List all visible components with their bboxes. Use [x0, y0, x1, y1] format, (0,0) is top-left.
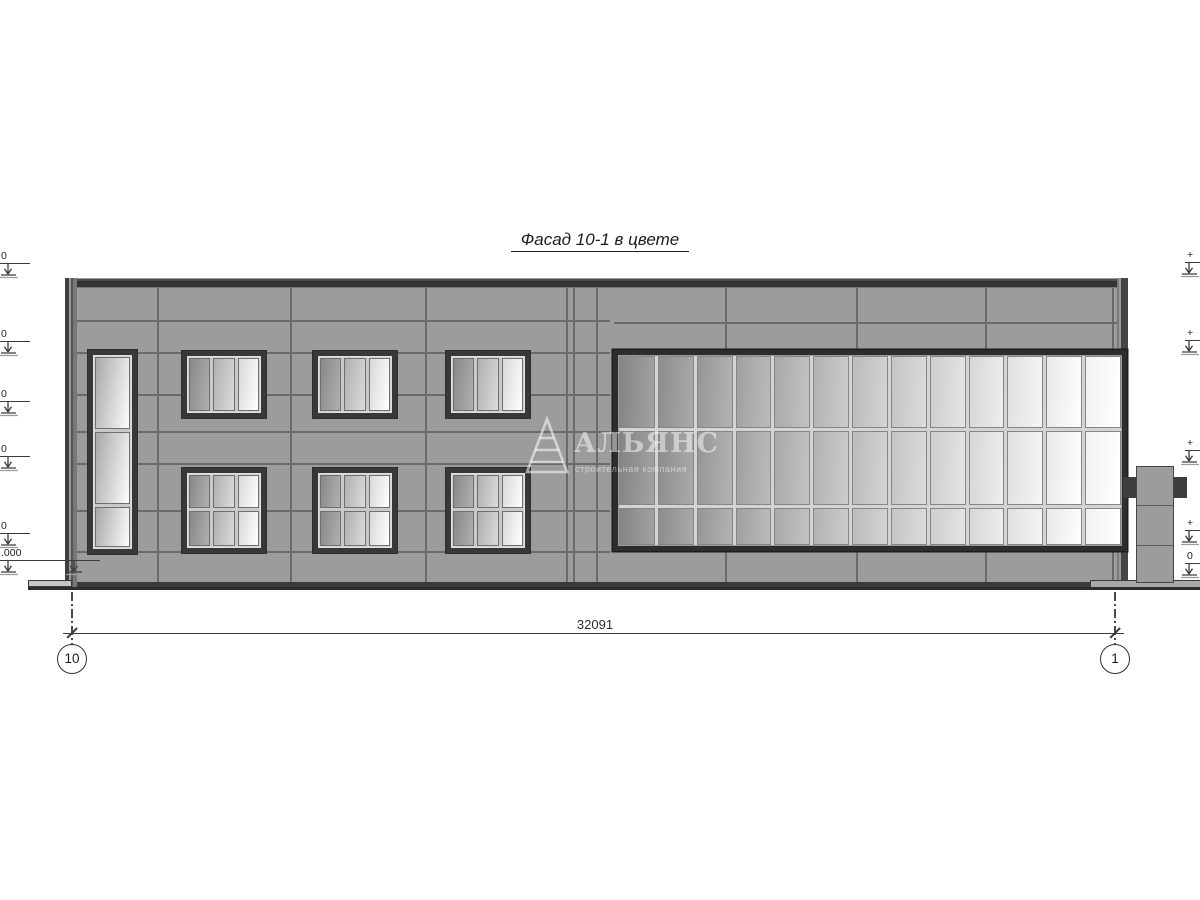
elevation-arrow-icon	[1181, 564, 1200, 580]
elevation-marker-right: +	[1181, 517, 1200, 547]
elevation-label: .000	[1, 547, 21, 559]
dimension-value: 32091	[545, 617, 645, 632]
elevation-label: +	[1187, 249, 1193, 261]
elevation-marker-left: 0	[0, 328, 36, 358]
drawing-title: Фасад 10-1 в цвете	[511, 230, 690, 252]
elevation-label: 0	[1187, 550, 1193, 562]
elevation-arrow-icon	[0, 342, 20, 358]
elevation-label: 0	[1, 388, 7, 400]
elevation-marker-right: +	[1181, 249, 1200, 279]
annotations: Фасад 10-1 в цвете 32091 10 1 00000.000+…	[0, 0, 1200, 900]
elevation-marker-left: 0	[0, 520, 36, 550]
elevation-marker-left: 0	[0, 388, 36, 418]
elevation-label: 0	[1, 328, 7, 340]
elevation-label: +	[1187, 517, 1193, 529]
axis-leader-right	[1114, 592, 1115, 644]
elevation-label: 0	[1, 250, 7, 262]
drawing-canvas: АЛЬЯНС строительная компания Фасад 10-1 …	[0, 0, 1200, 900]
elevation-arrow-icon	[0, 457, 20, 473]
drawing-title-wrap: Фасад 10-1 в цвете	[400, 230, 800, 250]
grid-axis-bubble-10: 10	[57, 644, 87, 674]
elevation-marker-right: +	[1181, 437, 1200, 467]
axis-leader-left	[71, 592, 72, 644]
elevation-marker-left: 0	[0, 250, 36, 280]
grid-axis-bubble-1: 1	[1100, 644, 1130, 674]
elevation-arrow-icon	[0, 561, 20, 577]
elevation-arrow-icon	[0, 402, 20, 418]
dimension-line	[63, 633, 1124, 634]
elevation-arrow-icon	[1181, 263, 1200, 279]
elevation-arrow-icon	[66, 561, 86, 577]
elevation-arrow-icon	[1181, 451, 1200, 467]
elevation-arrow-icon	[0, 264, 20, 280]
elevation-arrow-icon	[1181, 341, 1200, 357]
elevation-marker-left: .000	[0, 547, 108, 577]
elevation-label: +	[1187, 437, 1193, 449]
elevation-label: 0	[1, 520, 7, 532]
elevation-marker-left: 0	[0, 443, 36, 473]
elevation-marker-right: 0	[1181, 550, 1200, 580]
elevation-arrow-icon	[1181, 531, 1200, 547]
elevation-marker-right: +	[1181, 327, 1200, 357]
elevation-label: 0	[1, 443, 7, 455]
elevation-label: +	[1187, 327, 1193, 339]
